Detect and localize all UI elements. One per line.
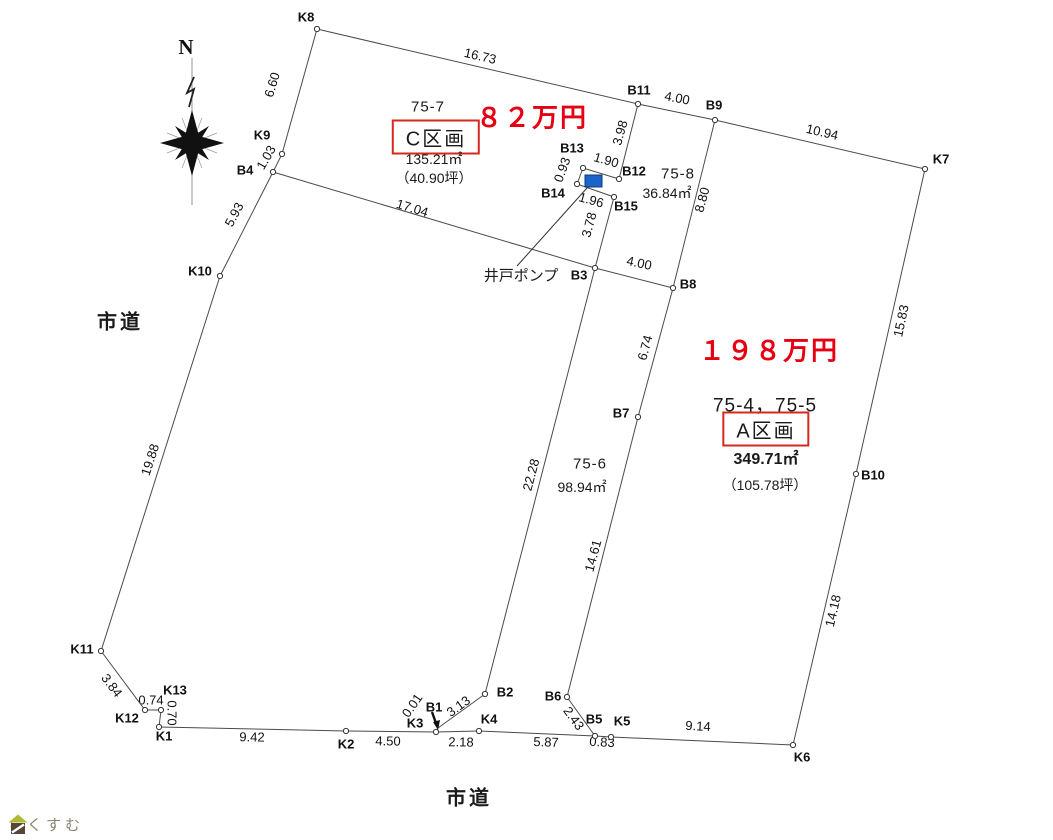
distance-label: 22.28	[520, 457, 543, 492]
distance-label: 0.93	[551, 155, 574, 184]
distance-label: 16.73	[463, 45, 498, 67]
boundary-line-b11-b9	[638, 104, 715, 120]
boundary-line-k5-k6	[611, 737, 793, 745]
boundary-line-b3-b8	[595, 268, 673, 288]
point-label-k4: K4	[481, 711, 498, 726]
distance-label: 4.50	[375, 733, 401, 748]
distance-label: 6.74	[634, 334, 655, 362]
distance-label: 4.00	[663, 88, 691, 108]
survey-point-b4	[270, 169, 275, 174]
parcel-a-area: 349.71㎡	[734, 445, 799, 469]
compass-rose	[158, 58, 226, 205]
distance-label: 1.90	[592, 149, 620, 170]
point-label-b3: B3	[571, 267, 588, 282]
point-label-b8: B8	[680, 276, 697, 291]
parcel-75-8-area: 36.84㎡	[642, 183, 691, 203]
point-label-b5: B5	[586, 711, 603, 726]
point-label-k5: K5	[614, 713, 631, 728]
survey-point-k2	[343, 728, 348, 733]
point-label-b15: B15	[614, 198, 638, 213]
survey-point-b2	[482, 691, 487, 696]
point-label-k2: K2	[338, 736, 355, 751]
distance-label: 5.87	[533, 734, 559, 750]
boundary-line-k8-k9	[282, 29, 317, 154]
boundary-line-k3-k4	[436, 731, 479, 732]
distance-label: 3.84	[98, 671, 125, 700]
point-label-b9: B9	[706, 97, 723, 112]
survey-point-b12	[616, 176, 621, 181]
survey-point-b7	[635, 414, 640, 419]
distance-label: 19.88	[138, 442, 162, 478]
distance-label: 0.74	[138, 692, 163, 707]
point-label-k11: K11	[70, 641, 93, 656]
survey-point-b13	[580, 165, 585, 170]
point-label-k1: K1	[156, 728, 173, 743]
point-label-b4: B4	[237, 162, 254, 177]
distance-label: 9.42	[239, 729, 265, 744]
land-plot-diagram-page: { "diagram": { "compass_label": "N", "ro…	[0, 0, 1053, 840]
distance-label: 2.43	[560, 704, 587, 733]
distance-label: 3.78	[578, 211, 599, 239]
survey-point-b11	[635, 101, 640, 106]
boundary-line-b10-k6	[793, 474, 856, 745]
house-icon	[8, 814, 28, 835]
survey-point-k10	[217, 273, 222, 278]
point-label-k9: K9	[254, 127, 271, 142]
point-label-b12: B12	[622, 163, 646, 178]
distance-label: 9.14	[685, 718, 711, 734]
point-label-b7: B7	[613, 405, 630, 420]
parcel-75-8-lot-number: 75-8	[661, 166, 695, 183]
parcel-a-name-badge: A区画	[722, 412, 809, 447]
point-label-b6: B6	[545, 688, 562, 703]
survey-point-k5	[608, 734, 613, 739]
survey-point-b14	[574, 181, 579, 186]
boundary-line-k2-k3	[346, 731, 436, 732]
point-label-k10: K10	[188, 263, 212, 278]
parcel-a-price: １９８万円	[699, 331, 839, 368]
point-label-k6: K6	[794, 749, 811, 764]
distance-label: 6.60	[261, 70, 283, 99]
distance-label: 14.18	[822, 593, 844, 628]
survey-point-b3	[592, 265, 597, 270]
well-pump-label: 井戸ポンプ	[484, 265, 559, 286]
parcel-c-price: ８２万円	[476, 98, 588, 135]
survey-point-b9	[712, 117, 717, 122]
survey-point-k3	[433, 729, 438, 734]
survey-point-k8	[314, 26, 319, 31]
point-label-k8: K8	[298, 9, 315, 24]
distance-label: 3.13	[444, 693, 473, 720]
distance-label: 3.98	[609, 118, 630, 146]
parcel-c-area: 135.21㎡	[406, 149, 463, 169]
parcel-c-lot-number: 75-7	[411, 99, 445, 116]
distance-label: 14.61	[582, 538, 605, 573]
boundary-line-k7-b10	[856, 169, 925, 474]
point-label-b11: B11	[627, 82, 650, 97]
survey-point-b10	[853, 471, 858, 476]
distance-label: 2.18	[448, 734, 474, 749]
survey-point-b6	[564, 694, 569, 699]
survey-point-k6	[790, 742, 795, 747]
survey-point-k13	[158, 707, 163, 712]
parcel-75-6-lot-number: 75-6	[573, 456, 607, 473]
compass-bolt-arrow	[187, 77, 194, 107]
distance-label: 5.93	[221, 200, 246, 229]
distance-label: 4.00	[625, 253, 653, 273]
survey-point-k11	[98, 648, 103, 653]
b1-pointer-arrowhead	[433, 720, 440, 730]
point-label-b10: B10	[861, 467, 885, 482]
point-label-k7: K7	[933, 151, 950, 166]
point-label-k13: K13	[163, 682, 187, 697]
compass-main-star	[160, 110, 224, 176]
distance-label: 17.04	[395, 196, 431, 220]
distance-label: 0.70	[165, 700, 180, 725]
road-label-left: 市道	[97, 306, 143, 335]
survey-point-b5	[592, 733, 597, 738]
parcel-75-6-area: 98.94㎡	[557, 477, 606, 497]
survey-point-k4	[476, 728, 481, 733]
point-label-k12: K12	[115, 710, 139, 725]
survey-point-k9	[279, 151, 284, 156]
parcel-a-area-tsubo: （105.78坪）	[723, 475, 808, 495]
site-logo: らくすむ	[8, 814, 84, 835]
point-label-b14: B14	[541, 185, 566, 200]
parcel-c-area-tsubo: （40.90坪）	[395, 168, 472, 188]
distance-label: 8.80	[691, 186, 712, 214]
compass-north-label: N	[178, 35, 193, 59]
road-label-bottom: 市道	[446, 782, 492, 811]
survey-point-k12	[142, 707, 147, 712]
well-pump-marker	[585, 175, 602, 187]
boundary-line-k8-b11	[317, 29, 638, 104]
point-label-b13: B13	[560, 140, 584, 155]
point-label-k3: K3	[407, 715, 424, 730]
distance-label: 10.94	[805, 121, 840, 143]
survey-point-b8	[670, 285, 675, 290]
point-label-b1: B1	[426, 699, 443, 714]
survey-point-k7	[922, 166, 927, 171]
point-label-b2: B2	[497, 684, 514, 699]
